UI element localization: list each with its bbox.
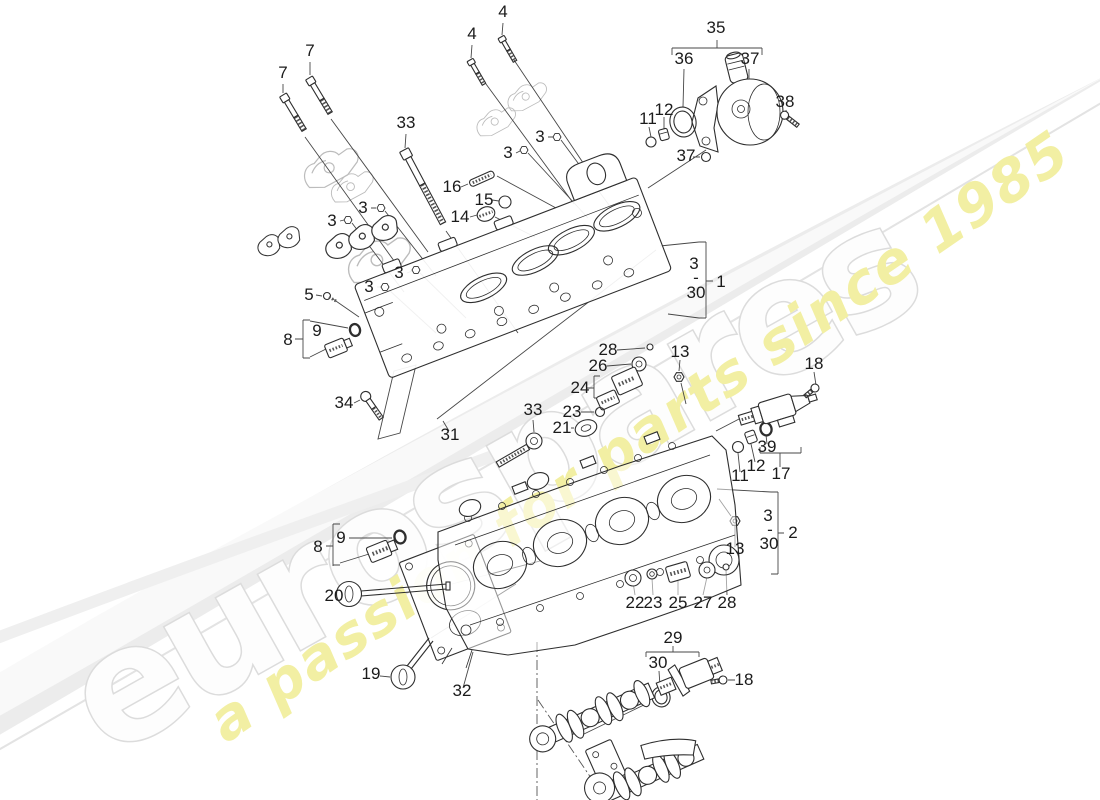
- bolt-34: [359, 389, 386, 421]
- part-callout-27[interactable]: 27: [694, 593, 713, 612]
- bolt-33-top: [400, 148, 448, 226]
- part-callout-18[interactable]: 18: [805, 354, 824, 373]
- ball-28: [647, 344, 653, 350]
- part-callout-12[interactable]: 12: [655, 100, 674, 119]
- part-callout-35[interactable]: 35: [707, 18, 726, 37]
- part-callout-23[interactable]: 23: [644, 593, 663, 612]
- part-callout-34[interactable]: 34: [335, 393, 354, 412]
- washer-27: [699, 562, 715, 578]
- part-callout-30[interactable]: 30: [760, 534, 779, 553]
- part-callout-12[interactable]: 12: [747, 456, 766, 475]
- part-callout-30[interactable]: 30: [649, 653, 668, 672]
- part-callout-13[interactable]: 13: [671, 342, 690, 361]
- part-callout-26[interactable]: 26: [589, 356, 608, 375]
- part-callout-4[interactable]: 4: [498, 2, 507, 21]
- part-callout-5[interactable]: 5: [304, 285, 313, 304]
- part-callout-33[interactable]: 33: [397, 113, 416, 132]
- parts-diagram: eurospares a passion for parts since 198…: [0, 0, 1100, 800]
- part-callout-11[interactable]: 11: [731, 466, 749, 485]
- part-callout-3[interactable]: 3: [358, 198, 367, 217]
- part-callout-37[interactable]: 37: [741, 49, 760, 68]
- part-callout-25[interactable]: 25: [669, 593, 688, 612]
- part-callout-21[interactable]: 21: [553, 418, 572, 437]
- part-callout-30[interactable]: 30: [687, 283, 706, 302]
- part-callout-24[interactable]: 24: [571, 378, 590, 397]
- part-callout-13[interactable]: 13: [726, 539, 745, 558]
- part-callout-7[interactable]: 7: [278, 63, 287, 82]
- part-callout-37[interactable]: 37: [677, 146, 696, 165]
- part-callout-31[interactable]: 31: [441, 425, 460, 444]
- part-callout-9[interactable]: 9: [312, 321, 321, 340]
- part-callout-36[interactable]: 36: [675, 49, 694, 68]
- part-callout-1[interactable]: 1: [716, 272, 725, 291]
- part-callout-9[interactable]: 9: [336, 528, 345, 547]
- part-callout-29[interactable]: 29: [664, 628, 683, 647]
- bolt-7-a: [280, 93, 308, 132]
- part-callout-18[interactable]: 18: [735, 670, 754, 689]
- cap-15: [499, 196, 511, 208]
- part-callout-17[interactable]: 17: [772, 464, 791, 483]
- bolt-7-b: [306, 76, 334, 115]
- part-callout-28[interactable]: 28: [718, 593, 737, 612]
- part-callout-20[interactable]: 20: [325, 586, 344, 605]
- bolt-4-a: [467, 58, 487, 86]
- part-callout-3[interactable]: 3: [503, 143, 512, 162]
- nut-13-upper: [674, 373, 684, 382]
- part-callout-8[interactable]: 8: [313, 537, 322, 556]
- part-callout-22[interactable]: 22: [626, 593, 645, 612]
- part-callout-3[interactable]: 3: [394, 263, 403, 282]
- part-callout-3[interactable]: 3: [327, 211, 336, 230]
- bolt-4-b: [498, 35, 518, 63]
- page: eurospares a passion for parts since 198…: [0, 0, 1100, 800]
- part-callout-3[interactable]: 3: [364, 277, 373, 296]
- part-callout-33[interactable]: 33: [524, 400, 543, 419]
- plug-12: [658, 128, 670, 141]
- valve-19: [391, 638, 433, 689]
- part-callout-11[interactable]: 11: [639, 109, 657, 128]
- plug-9-upper: [324, 323, 361, 358]
- part-callout-16[interactable]: 16: [443, 177, 462, 196]
- part-callout-8[interactable]: 8: [283, 330, 292, 349]
- part-callout-3[interactable]: 3: [535, 127, 544, 146]
- seal-ring-11: [646, 137, 656, 147]
- part-callout-2[interactable]: 2: [788, 523, 797, 542]
- part-callout-14[interactable]: 14: [451, 207, 470, 226]
- washer-22: [625, 570, 641, 586]
- ring-23: [647, 569, 657, 579]
- part-callout-19[interactable]: 19: [362, 664, 381, 683]
- part-callout-4[interactable]: 4: [467, 24, 476, 43]
- stud-16: [469, 170, 496, 187]
- part-callout-7[interactable]: 7: [305, 41, 314, 60]
- part-callout-39[interactable]: 39: [758, 437, 777, 456]
- part-callout-32[interactable]: 32: [453, 681, 472, 700]
- seal-37: [702, 153, 711, 162]
- part-callout-15[interactable]: 15: [475, 190, 494, 209]
- ball-28-bottom: [723, 564, 729, 570]
- part-callout-38[interactable]: 38: [776, 92, 795, 111]
